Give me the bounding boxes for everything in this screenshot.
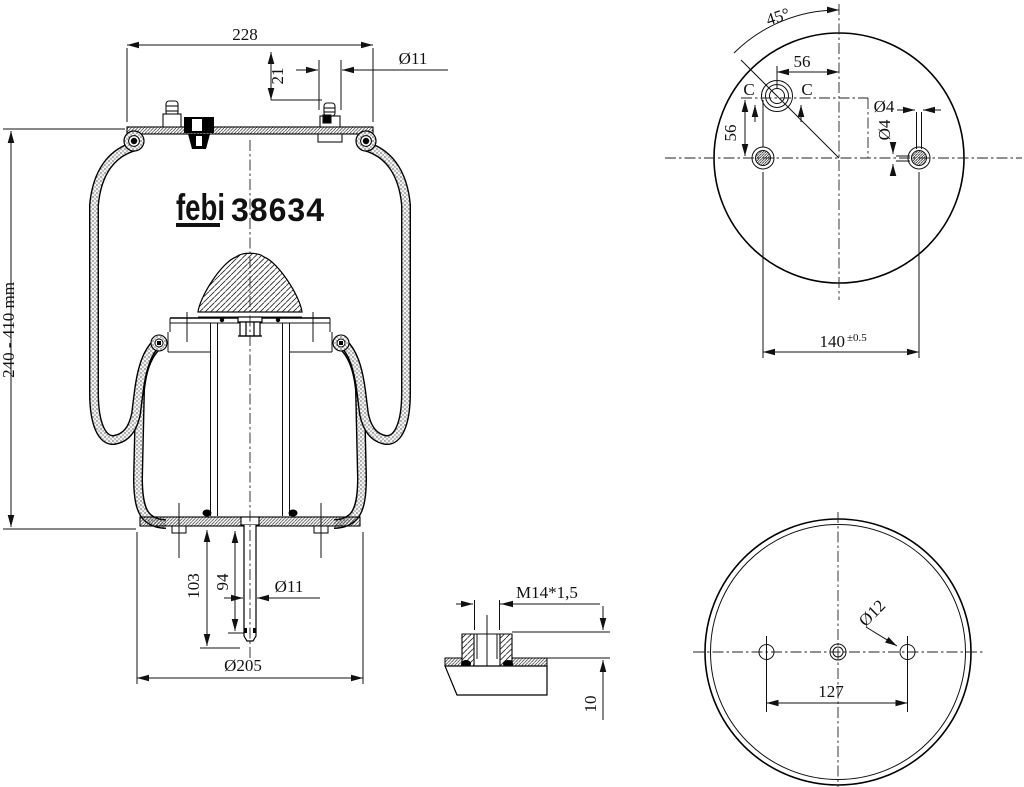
dim-design-height: 240 - 410 mm <box>0 129 136 529</box>
dim-94-label: 94 <box>213 573 232 591</box>
dim-height-range-label: 240 - 410 mm <box>0 282 18 378</box>
dim-thread: M14*1,5 <box>456 583 600 630</box>
part-number: 38634 <box>231 192 325 228</box>
dim-o4h-label: Ø4 <box>874 97 895 116</box>
detail-view: M14*1,5 10 <box>445 583 610 720</box>
dim-hole-spacing: 127 <box>767 662 908 712</box>
dim-stud-spacing: 140 ±0.5 <box>763 172 919 358</box>
dim-10-label: 10 <box>581 696 600 713</box>
section-label-right: C <box>801 80 812 99</box>
brand-block: febi 38634 <box>176 187 325 228</box>
dim-o12-label: Ø12 <box>855 596 889 630</box>
dim-127-label: 127 <box>818 682 844 701</box>
drawing-canvas: febi 38634 228 21 Ø11 <box>0 0 1024 787</box>
dim-56h-label: 56 <box>794 52 811 71</box>
dim-lower-stud-dia: Ø11 <box>224 577 320 598</box>
dim-stud-height: 21 <box>268 52 322 100</box>
dim-45deg-label: 45° <box>764 4 793 29</box>
dim-hole-dia: Ø12 <box>855 596 897 646</box>
top-view: 45° 56 C C 56 <box>665 4 1022 358</box>
air-fitting <box>184 117 214 149</box>
dim-stud-lengths: 103 94 <box>184 530 244 648</box>
dim-m14-label: M14*1,5 <box>516 583 578 602</box>
dim-o11-top-label: Ø11 <box>399 49 428 68</box>
dim-228-label: 228 <box>232 25 258 44</box>
section-line: C C <box>741 80 868 158</box>
vent-passage: Ø4 Ø4 <box>874 97 941 176</box>
dim-o205-label: Ø205 <box>224 656 262 675</box>
dim-o11-bottom-label: Ø11 <box>275 577 304 596</box>
bottom-view: Ø12 127 <box>693 512 983 787</box>
dim-140-label: 140 <box>820 332 846 351</box>
dim-103-label: 103 <box>184 573 203 599</box>
dim-top-width: 228 <box>127 25 373 122</box>
side-view: febi 38634 228 21 Ø11 <box>0 25 448 684</box>
section-label-left: C <box>743 80 754 99</box>
dim-140-tolerance: ±0.5 <box>847 332 867 344</box>
technical-drawing: febi 38634 228 21 Ø11 <box>0 0 1024 787</box>
dim-top-stud-dia: Ø11 <box>296 49 448 110</box>
dim-21-label: 21 <box>268 68 287 85</box>
dim-o4v-label: Ø4 <box>875 119 894 140</box>
febi-logo-underline <box>176 223 220 227</box>
dim-56v-label: 56 <box>721 125 740 142</box>
febi-logo: febi <box>176 187 225 228</box>
